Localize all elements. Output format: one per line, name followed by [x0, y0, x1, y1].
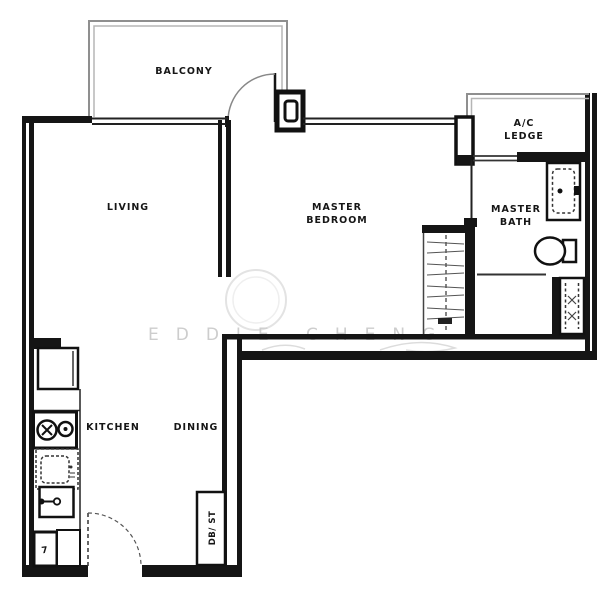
living-label: LIVING: [107, 202, 149, 213]
kitchen-fixtures: 7: [33, 338, 80, 566]
balcony-label: BALCONY: [155, 66, 213, 77]
balcony-door: [225, 73, 275, 127]
ac-ledge-label: A/C LEDGE: [504, 118, 544, 142]
toilet: [535, 238, 576, 265]
heater-box: 7: [34, 532, 57, 566]
sink: [36, 449, 78, 489]
washer: [39, 487, 74, 517]
ac-ledge-walls: [456, 94, 589, 164]
svg-text:LEDGE: LEDGE: [504, 131, 544, 142]
svg-text:MASTER: MASTER: [312, 202, 362, 213]
shower: [547, 163, 581, 220]
svg-text:BATH: BATH: [500, 217, 532, 228]
db-st-label: DB/ ST: [208, 511, 218, 546]
entry-door: [88, 513, 141, 566]
kitchen-label: KITCHEN: [86, 422, 140, 433]
dining-label: DINING: [174, 422, 219, 433]
column-box: [277, 92, 303, 130]
svg-text:A/C: A/C: [514, 118, 535, 129]
stove: [34, 412, 77, 448]
master-bedroom-label: MASTER BEDROOM: [306, 202, 368, 226]
svg-text:BEDROOM: BEDROOM: [306, 215, 368, 226]
counter-box: [57, 530, 80, 566]
svg-text:MASTER: MASTER: [491, 204, 541, 215]
shaft: [552, 277, 584, 334]
living-bedroom-wall: [218, 120, 231, 277]
fridge: [38, 348, 78, 389]
master-bath-label: MASTER BATH: [491, 204, 541, 228]
floor-plan: EDDIE CHENG: [0, 0, 610, 600]
exterior-walls: [22, 93, 597, 577]
master-bath: [464, 160, 584, 334]
db-st-closet: DB/ ST: [197, 492, 225, 565]
wardrobe: [422, 225, 475, 334]
